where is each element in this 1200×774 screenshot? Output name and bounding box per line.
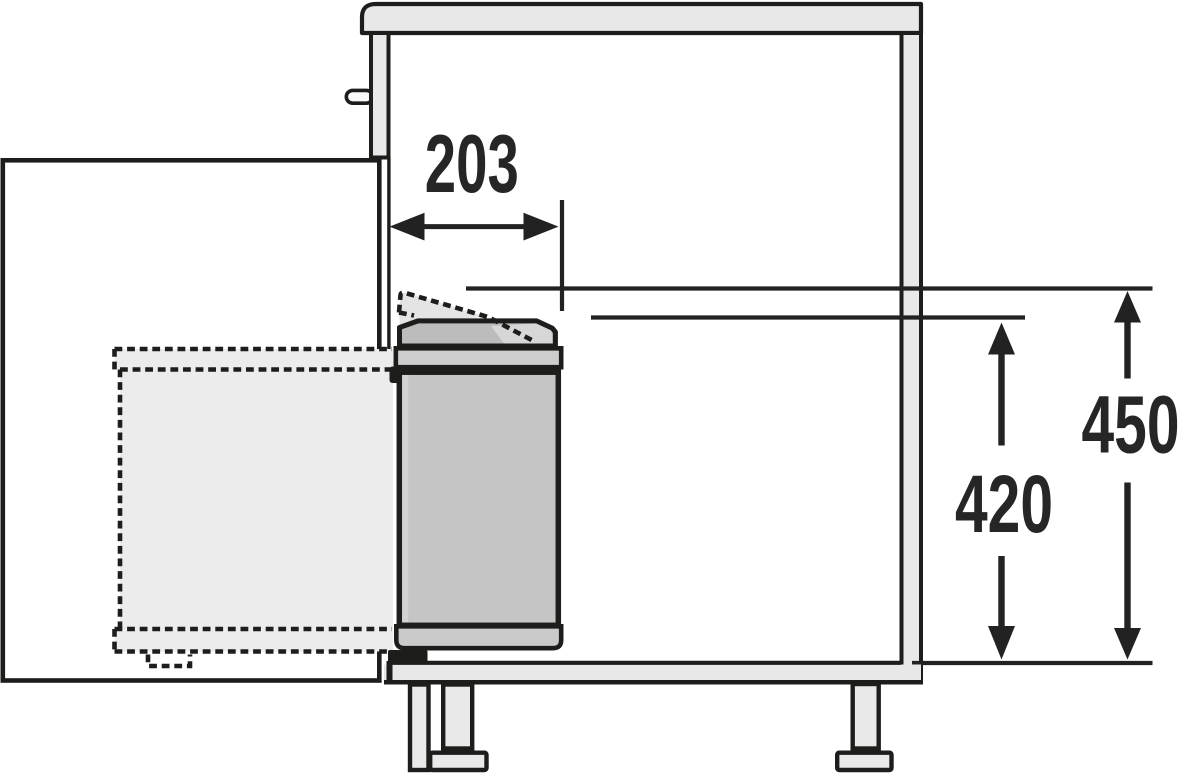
svg-text:450: 450 (1082, 380, 1180, 471)
svg-text:203: 203 (425, 117, 519, 210)
svg-text:420: 420 (955, 459, 1053, 550)
